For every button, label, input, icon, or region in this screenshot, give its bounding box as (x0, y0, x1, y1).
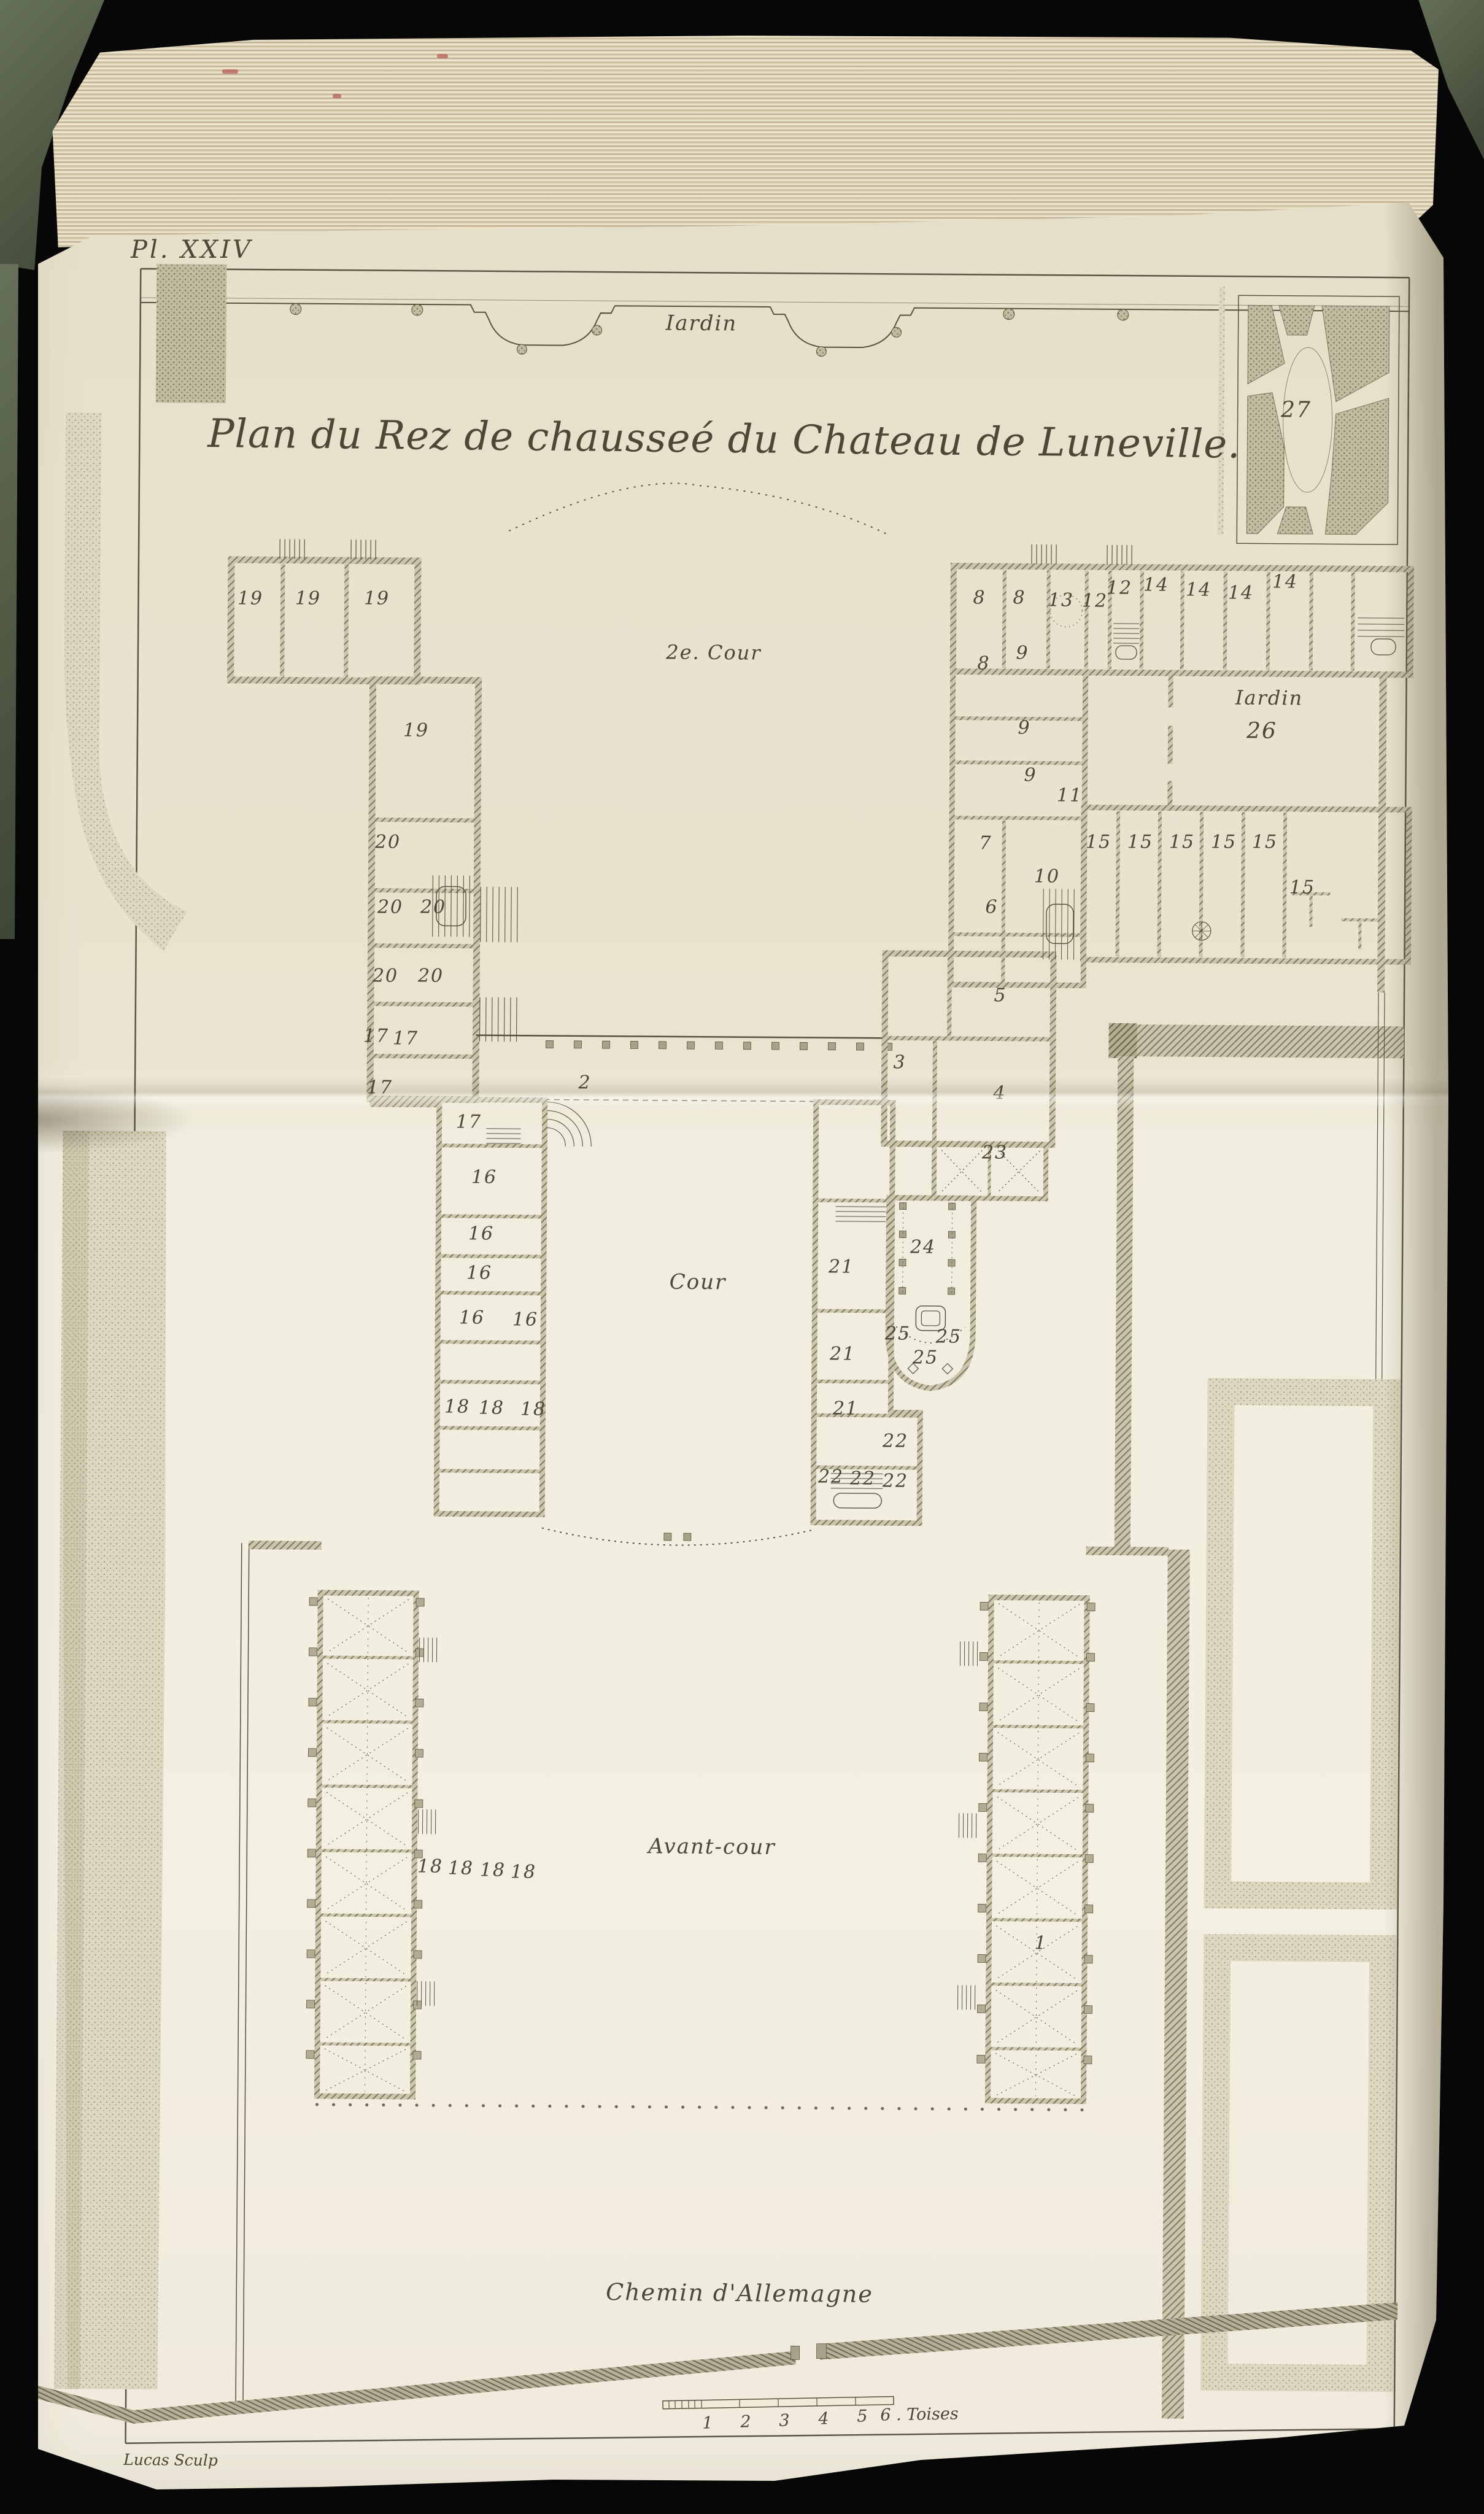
page-edge-marks (437, 54, 448, 58)
book-photograph: Pl. XXIV Plan du Rez de chausseé du Chat… (0, 0, 1484, 2514)
page-edge-marks (222, 69, 238, 74)
page-edge-marks (333, 94, 341, 98)
book-cover-left-edge (0, 264, 18, 939)
page-vignette (0, 0, 1484, 2514)
foldout-plate-page: Pl. XXIV Plan du Rez de chausseé du Chat… (0, 0, 1484, 2514)
